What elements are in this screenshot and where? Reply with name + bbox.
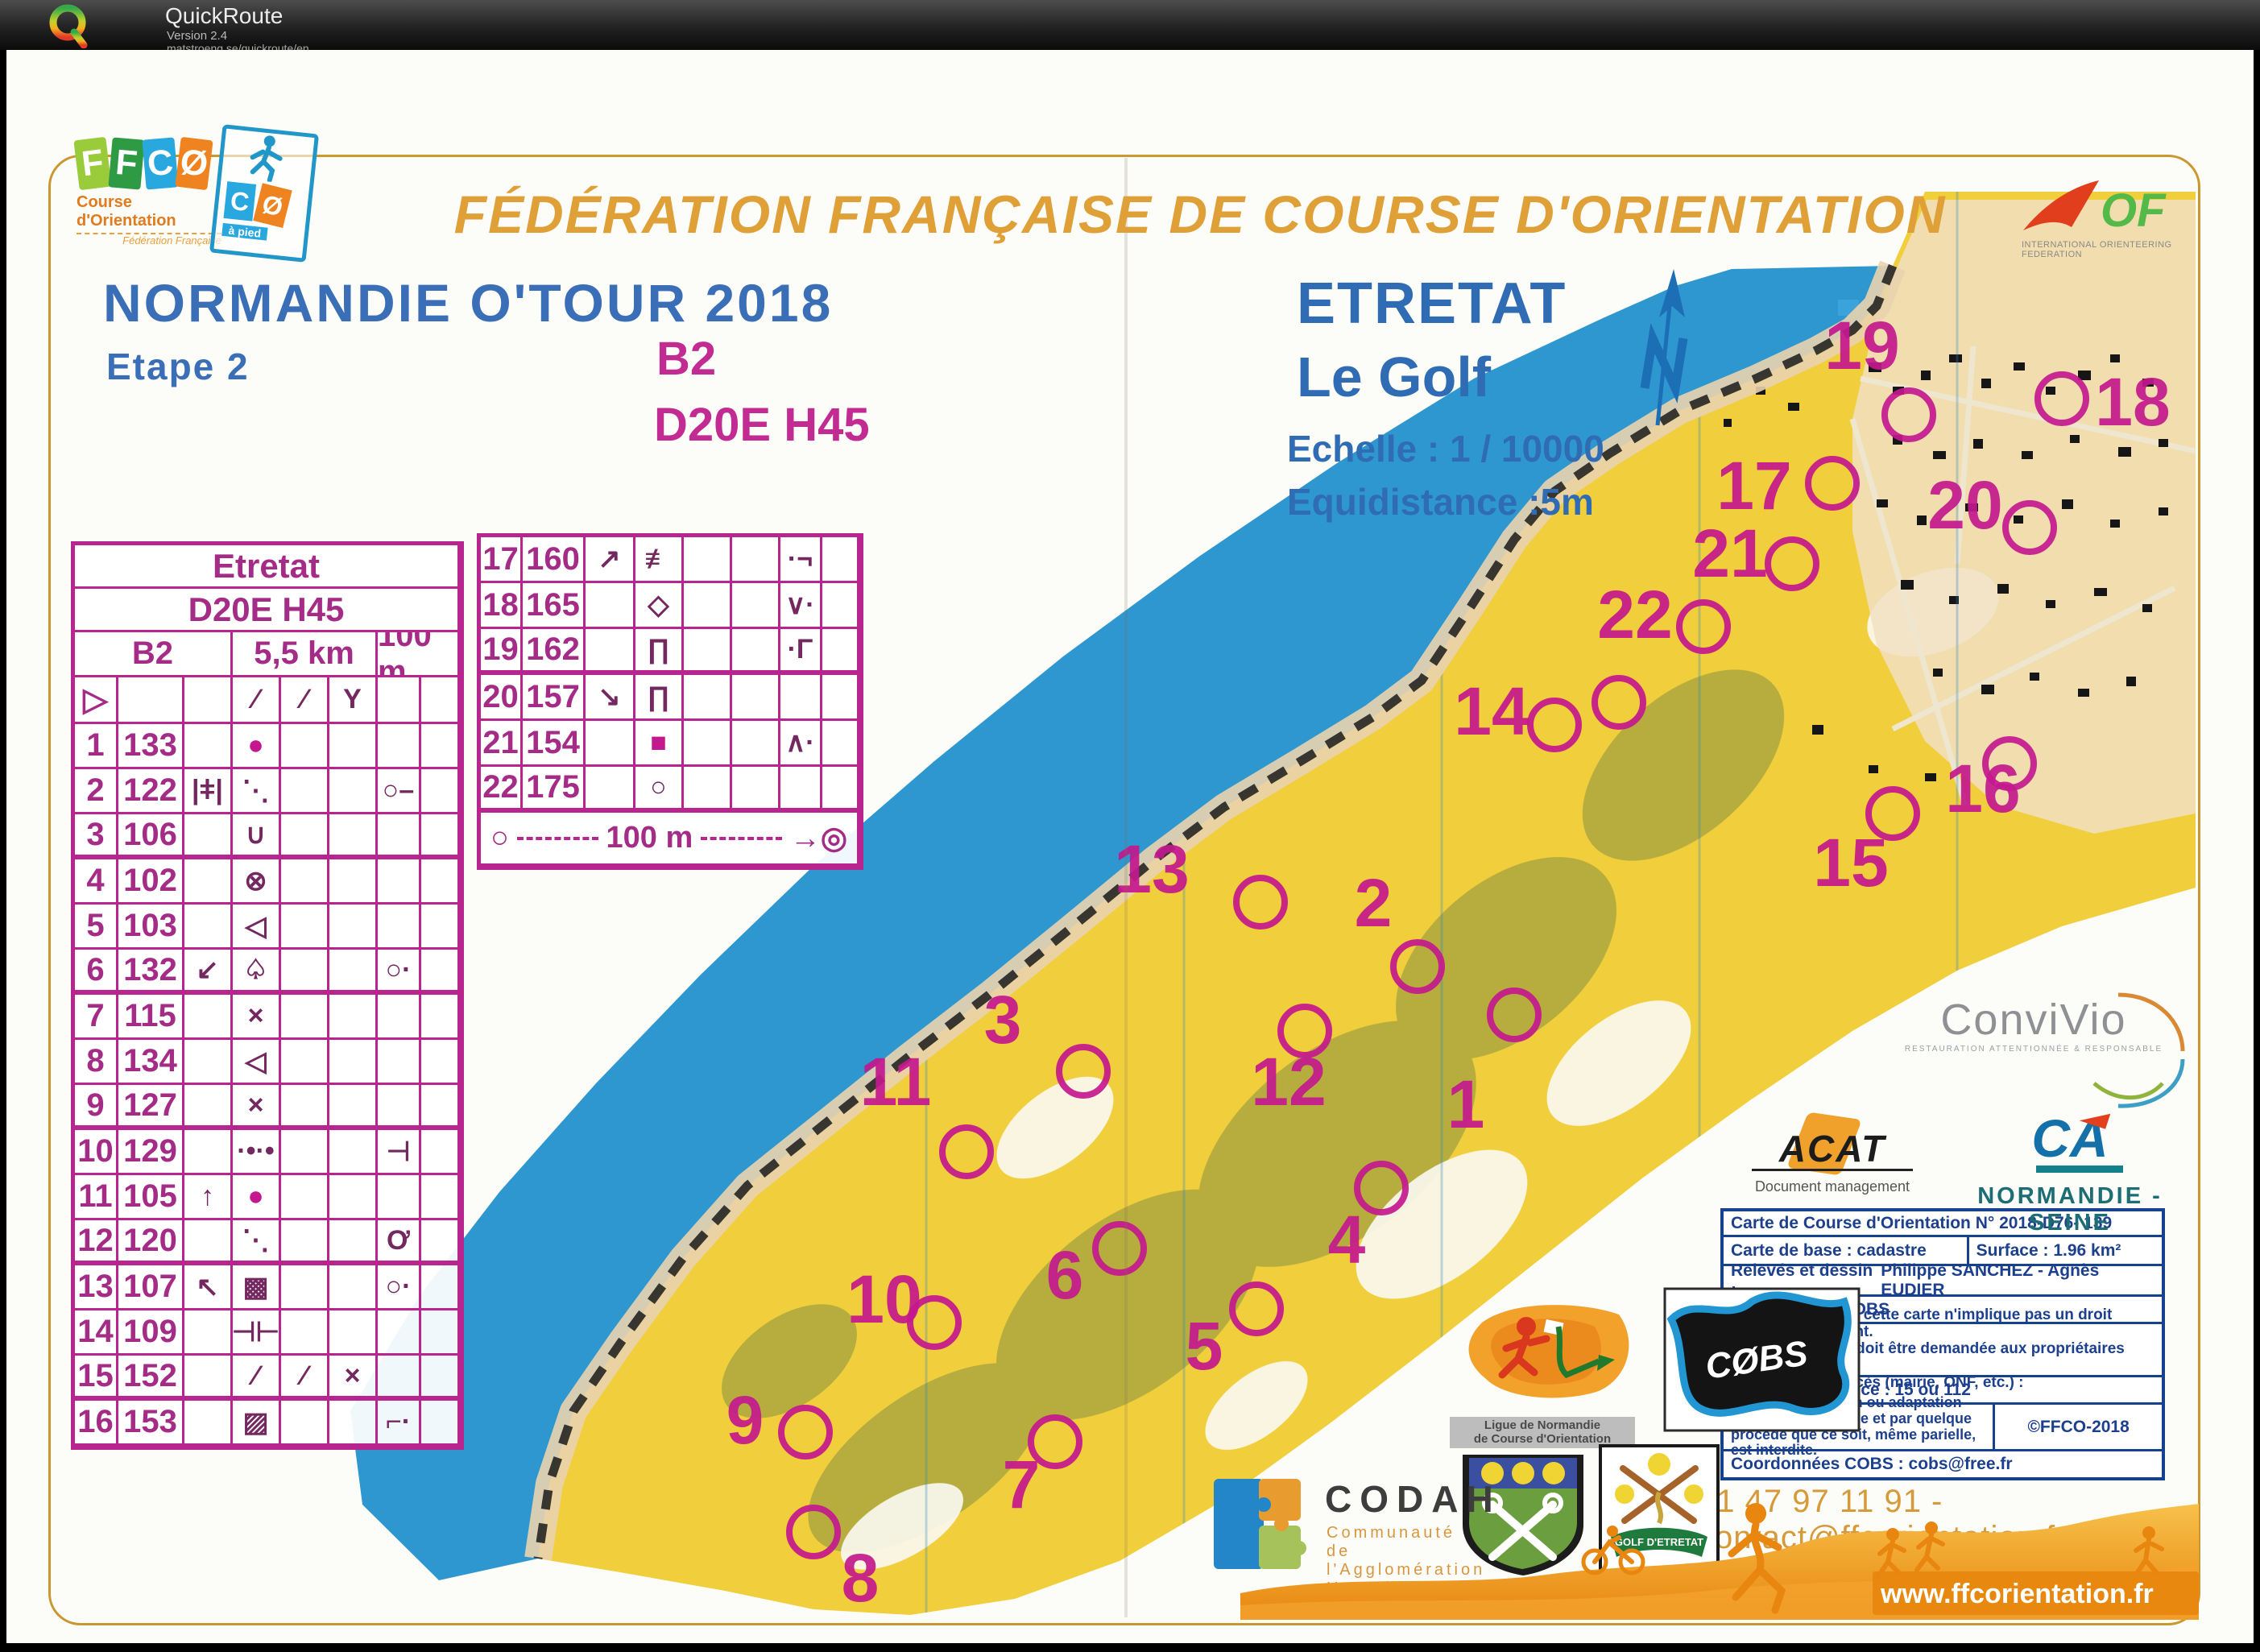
cell [732, 721, 780, 767]
cell: 16 [75, 1401, 118, 1446]
cell: 11 [75, 1175, 118, 1220]
cell: ↖ [184, 1265, 233, 1310]
event-course: B2 [656, 332, 716, 386]
scale-dash [701, 837, 782, 840]
cell: ● [233, 1175, 281, 1220]
cell [281, 1310, 329, 1356]
cell: ⌐· [378, 1401, 421, 1446]
cell [281, 1401, 329, 1446]
cell [822, 767, 859, 813]
cell: 21 [481, 721, 523, 767]
ffco-subcaption: Fédération Française [77, 233, 221, 246]
cell [184, 677, 233, 724]
cell: ♤ [233, 950, 281, 995]
cell [329, 724, 378, 769]
cell [586, 629, 635, 675]
ca-caption: NORMANDIE - SEINE [1953, 1183, 2187, 1236]
cell: ∕ [233, 677, 281, 724]
cell: 122 [118, 769, 184, 814]
cell: 2 [75, 769, 118, 814]
cell: × [329, 1356, 378, 1401]
scale-finish-circle: →◎ [790, 820, 847, 856]
cell [586, 767, 635, 813]
cell [421, 1265, 460, 1310]
cell: ↗ [586, 537, 635, 583]
cell: ◁ [233, 905, 281, 950]
cell: 17 [481, 537, 523, 583]
cell [421, 1085, 460, 1130]
cell: ·•·• [233, 1130, 281, 1175]
cell: × [233, 995, 281, 1040]
cell: 153 [118, 1401, 184, 1446]
cell [184, 1040, 233, 1085]
cell: 157 [523, 675, 586, 721]
cell: × [233, 1085, 281, 1130]
control-description-card-2: 17160↗≢·¬ 18165◇∨· 19162∏·Γ 20157↘∏ 2115… [477, 533, 863, 870]
cell: Y [329, 677, 378, 724]
map-equidistance: Equidistance :5m [1287, 480, 1594, 524]
cell: ○· [378, 1265, 421, 1310]
cell [421, 724, 460, 769]
cell: 20 [481, 675, 523, 721]
scale-dash [517, 837, 598, 840]
cell [184, 1220, 233, 1265]
cell [684, 629, 732, 675]
ffco-letter-tile: F [108, 137, 144, 189]
cell: 133 [118, 724, 184, 769]
ffco-letter-tile: Ø [175, 137, 213, 190]
cell: ■ [635, 721, 684, 767]
cell [378, 859, 421, 905]
cell [184, 1401, 233, 1446]
convivio-arcs-icon [2070, 987, 2191, 1116]
federation-banner-title: FÉDÉRATION FRANÇAISE DE COURSE D'ORIENTA… [451, 184, 1949, 245]
cell: 152 [118, 1356, 184, 1401]
cell: 107 [118, 1265, 184, 1310]
cell [281, 1130, 329, 1175]
cell [184, 1085, 233, 1130]
map-name: ETRETAT [1297, 271, 1567, 337]
cell: ∧· [780, 721, 822, 767]
ffco-website[interactable]: www.ffcorientation.fr [1881, 1579, 2146, 1610]
cell [281, 814, 329, 859]
cobs-blob-icon: CØBS [1663, 1287, 1861, 1432]
cell: 129 [118, 1130, 184, 1175]
cell [329, 995, 378, 1040]
cell: ↙ [184, 950, 233, 995]
cell: 103 [118, 905, 184, 950]
pub-base-map: Carte de base : cadastre [1724, 1237, 1969, 1264]
scale-start-circle: ○ [490, 821, 509, 855]
ligue-map-icon [1450, 1298, 1647, 1411]
cell [421, 677, 460, 724]
cell: 154 [523, 721, 586, 767]
cell [732, 767, 780, 813]
cell [329, 1220, 378, 1265]
ligue-caption-1: Ligue de Normandie [1450, 1419, 1635, 1433]
cell [281, 1220, 329, 1265]
cobs-logo: CØBS [1663, 1287, 1861, 1432]
credit-agricole-logo: CA NORMANDIE - SEINE [1953, 1108, 2187, 1220]
scale-label: 100 m [606, 821, 693, 855]
pub-cobs-contact: Coordonnées COBS : cobs@free.fr [1724, 1451, 2162, 1477]
cell: 165 [523, 583, 586, 629]
cell: ⋱ [233, 1220, 281, 1265]
cell: 18 [481, 583, 523, 629]
cell: ○ [635, 767, 684, 813]
cell [822, 629, 859, 675]
ligue-normandie-logo: Ligue de Normandie de Course d'Orientati… [1450, 1298, 1647, 1447]
cell [684, 767, 732, 813]
cell [281, 995, 329, 1040]
cell [421, 1130, 460, 1175]
cell [329, 1310, 378, 1356]
cell [329, 1265, 378, 1310]
cell [329, 1401, 378, 1446]
cell: 6 [75, 950, 118, 995]
cell [822, 583, 859, 629]
cell [421, 769, 460, 814]
cell [329, 1085, 378, 1130]
iof-swoosh-icon [2022, 179, 2102, 235]
cell: 15 [75, 1356, 118, 1401]
cell [378, 724, 421, 769]
cell: ·Γ [780, 629, 822, 675]
cell [586, 721, 635, 767]
cell [421, 1175, 460, 1220]
co-letter-tile: Ø [253, 183, 292, 228]
cell: 162 [523, 629, 586, 675]
cell: 115 [118, 995, 184, 1040]
cell: 12 [75, 1220, 118, 1265]
cell: ↘ [586, 675, 635, 721]
cell: ▨ [233, 1401, 281, 1446]
cell: 1 [75, 724, 118, 769]
cell [184, 859, 233, 905]
co-caption: à pied [221, 223, 267, 241]
cell [421, 859, 460, 905]
cell: ·¬ [780, 537, 822, 583]
cell: 10 [75, 1130, 118, 1175]
cell [421, 1401, 460, 1446]
cell [378, 677, 421, 724]
north-arrow-icon [1625, 266, 1699, 431]
cell: ⊣⊢ [233, 1310, 281, 1356]
cell [684, 721, 732, 767]
map-area-name: Le Golf [1297, 345, 1491, 409]
cell [421, 1220, 460, 1265]
card-climb: 100 m [378, 632, 460, 677]
cell [822, 537, 859, 583]
cell [684, 675, 732, 721]
iof-letters: OF [2101, 184, 2166, 238]
cell [329, 950, 378, 995]
cell [184, 814, 233, 859]
ffco-caption: Course d'Orientation [77, 193, 221, 230]
cell [281, 1265, 329, 1310]
cell: ⊗ [233, 859, 281, 905]
cell: ∕ [233, 1356, 281, 1401]
cell: ◁ [233, 1040, 281, 1085]
cell [184, 905, 233, 950]
event-category: D20E H45 [654, 398, 870, 452]
cell [586, 583, 635, 629]
cell [684, 583, 732, 629]
cell: ↑ [184, 1175, 233, 1220]
cell: 127 [118, 1085, 184, 1130]
cell: 134 [118, 1040, 184, 1085]
cell [780, 675, 822, 721]
cell: Ơ [378, 1220, 421, 1265]
card-category: D20E H45 [75, 589, 460, 632]
event-stage: Etape 2 [106, 345, 250, 388]
cell [732, 629, 780, 675]
cell: 160 [523, 537, 586, 583]
cell [822, 721, 859, 767]
cell: ⋱ [233, 769, 281, 814]
cell [281, 905, 329, 950]
scale-bar: ○ 100 m →◎ [481, 813, 859, 866]
cell: 120 [118, 1220, 184, 1265]
cell: 13 [75, 1265, 118, 1310]
cell: 4 [75, 859, 118, 905]
cell: ⊣ [378, 1130, 421, 1175]
iof-caption: INTERNATIONAL ORIENTEERING FEDERATION [2022, 240, 2199, 259]
cell [329, 1130, 378, 1175]
cell [329, 769, 378, 814]
cell [421, 950, 460, 995]
card-course: B2 [75, 632, 233, 677]
cell [378, 1040, 421, 1085]
cell [184, 724, 233, 769]
cell [780, 767, 822, 813]
cell: ∨· [780, 583, 822, 629]
acat-name-wrap: ACAT [1752, 1127, 1913, 1170]
cell: 5 [75, 905, 118, 950]
pub-copyright: ©FFCO-2018 [1995, 1418, 2162, 1436]
cell: ○· [378, 950, 421, 995]
cell: 3 [75, 814, 118, 859]
cell: 9 [75, 1085, 118, 1130]
control-description-card: Etretat D20E H45 B2 5,5 km 100 m ▷∕∕Y 11… [71, 541, 464, 1450]
ca-underline-icon [2036, 1166, 2123, 1173]
cell [378, 1310, 421, 1356]
cell: ∏ [635, 675, 684, 721]
cell: ∕ [281, 1356, 329, 1401]
cell [378, 814, 421, 859]
acat-logo: ACAT Document management [1752, 1116, 1913, 1228]
cell [822, 675, 859, 721]
cell [732, 537, 780, 583]
cell: |ǂ| [184, 769, 233, 814]
cell [421, 814, 460, 859]
co-a-pied-logo: C Ø à pied [209, 124, 319, 263]
co-letter-tile: C [223, 181, 256, 222]
cell: ▩ [233, 1265, 281, 1310]
cell [378, 1085, 421, 1130]
iof-logo: OF INTERNATIONAL ORIENTEERING FEDERATION [2022, 179, 2199, 259]
cell [281, 859, 329, 905]
cell [421, 905, 460, 950]
cell [281, 950, 329, 995]
cell: 8 [75, 1040, 118, 1085]
cell [378, 1356, 421, 1401]
cell: 22 [481, 767, 523, 813]
cell [378, 1175, 421, 1220]
cell [421, 1310, 460, 1356]
cell [281, 1040, 329, 1085]
cell: 132 [118, 950, 184, 995]
cell [329, 814, 378, 859]
cell [184, 1356, 233, 1401]
cell: ∕ [281, 677, 329, 724]
cell: ● [233, 724, 281, 769]
cell [378, 995, 421, 1040]
ffco-letter-tile: F [73, 137, 111, 190]
cell [184, 1130, 233, 1175]
cell: ≢ [635, 537, 684, 583]
cell [329, 1175, 378, 1220]
cell [421, 1356, 460, 1401]
cell [184, 995, 233, 1040]
map-scale: Echelle : 1 / 10000 [1287, 427, 1604, 470]
cell: 106 [118, 814, 184, 859]
acat-name: ACAT [1779, 1128, 1885, 1170]
card-length: 5,5 km [233, 632, 378, 677]
cell [329, 859, 378, 905]
card-title: Etretat [75, 545, 460, 589]
cell [281, 1175, 329, 1220]
cell [184, 1310, 233, 1356]
cell: ◇ [635, 583, 684, 629]
event-title: NORMANDIE O'TOUR 2018 [103, 272, 833, 333]
cell [421, 995, 460, 1040]
cell [732, 675, 780, 721]
acat-caption: Document management [1755, 1178, 1910, 1194]
scan-fold-line [1124, 158, 1128, 1617]
cell: ∪ [233, 814, 281, 859]
cell: 14 [75, 1310, 118, 1356]
pub-survey-value: Philippe SANCHEZ - Agnès EUDIER [1881, 1261, 2154, 1298]
cell [281, 724, 329, 769]
cell [329, 905, 378, 950]
ffco-letter-tile: C [142, 137, 178, 189]
convivio-logo: ConviVio RESTAURATION ATTENTIONNÉE & RES… [1885, 995, 2183, 1120]
pub-surface: Surface : 1.96 km² [1969, 1241, 2162, 1260]
start-symbol: ▷ [75, 677, 118, 724]
cell: 7 [75, 995, 118, 1040]
cell [118, 677, 184, 724]
cell [732, 583, 780, 629]
cell: 102 [118, 859, 184, 905]
cell: ○– [378, 769, 421, 814]
cell: ∏ [635, 629, 684, 675]
cell [684, 537, 732, 583]
cell: 175 [523, 767, 586, 813]
runner-icon [221, 129, 307, 185]
cell [329, 1040, 378, 1085]
cell: 105 [118, 1175, 184, 1220]
cell [281, 769, 329, 814]
cell [421, 1040, 460, 1085]
cell: 109 [118, 1310, 184, 1356]
cell [281, 1085, 329, 1130]
ffco-logo: F F C Ø Course d'Orientation Fédération … [77, 139, 221, 261]
cell [378, 905, 421, 950]
cell: 19 [481, 629, 523, 675]
